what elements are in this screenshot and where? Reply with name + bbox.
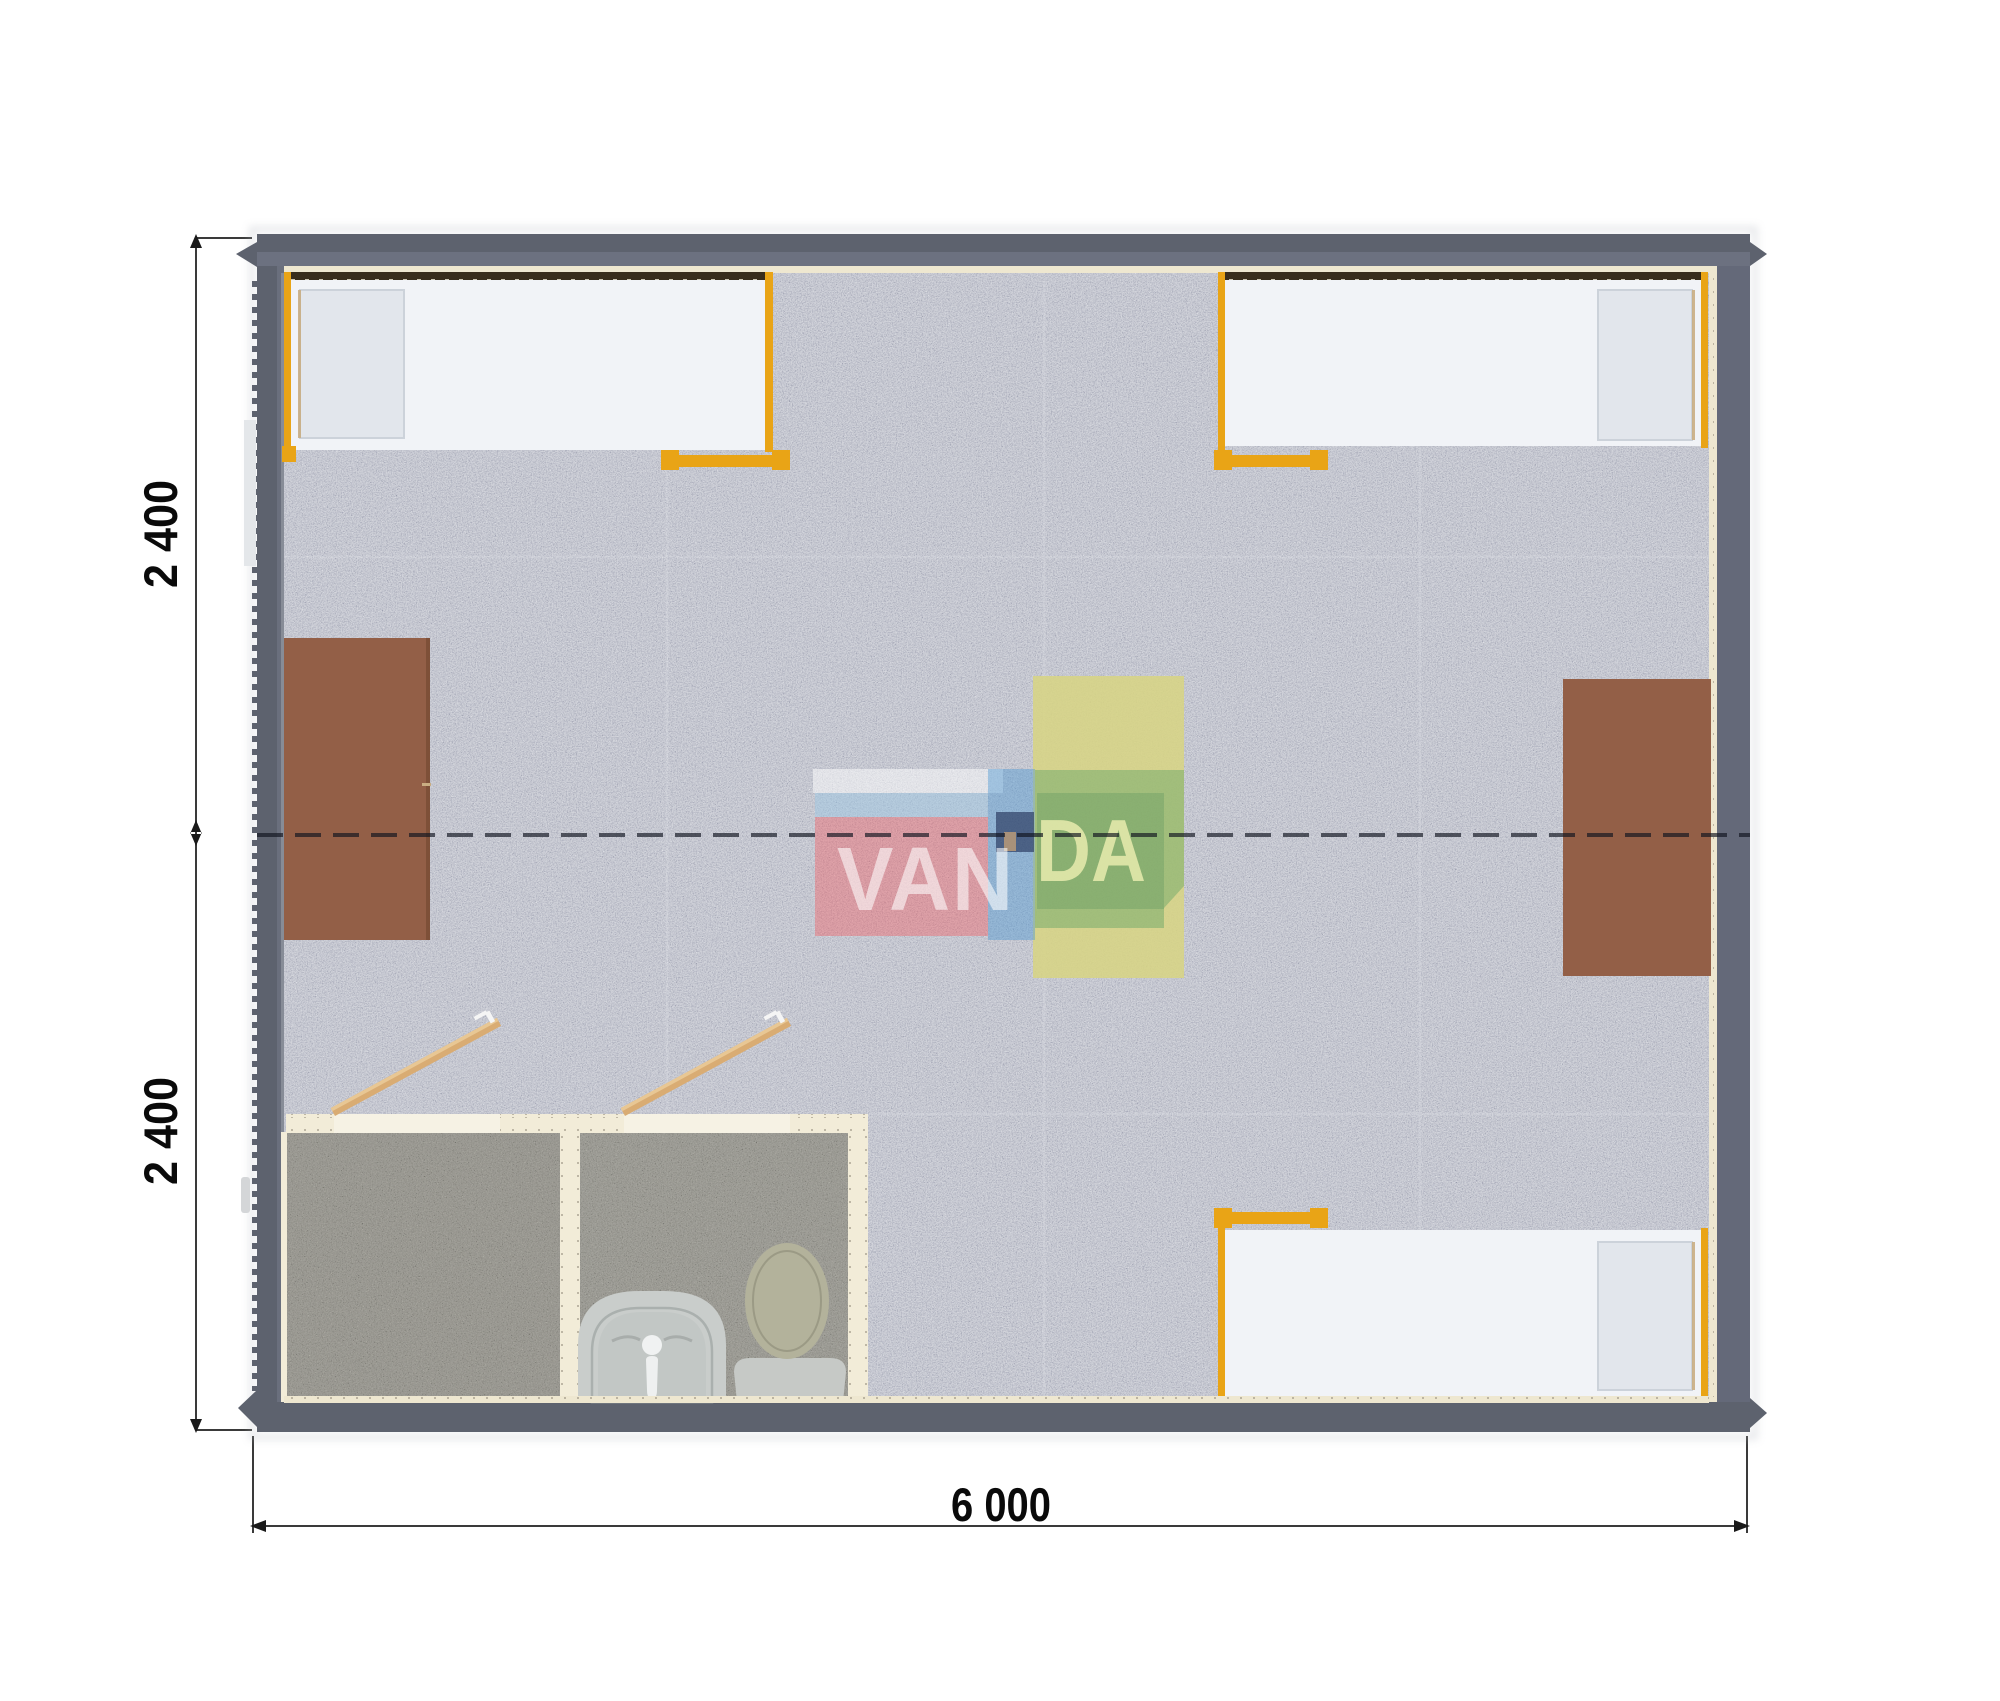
svg-text:VAN: VAN	[837, 830, 1015, 930]
svg-text:6 000: 6 000	[951, 1478, 1051, 1531]
svg-text:2 400: 2 400	[134, 480, 187, 588]
svg-text:DA: DA	[1036, 801, 1146, 900]
svg-text:2 400: 2 400	[134, 1077, 187, 1185]
